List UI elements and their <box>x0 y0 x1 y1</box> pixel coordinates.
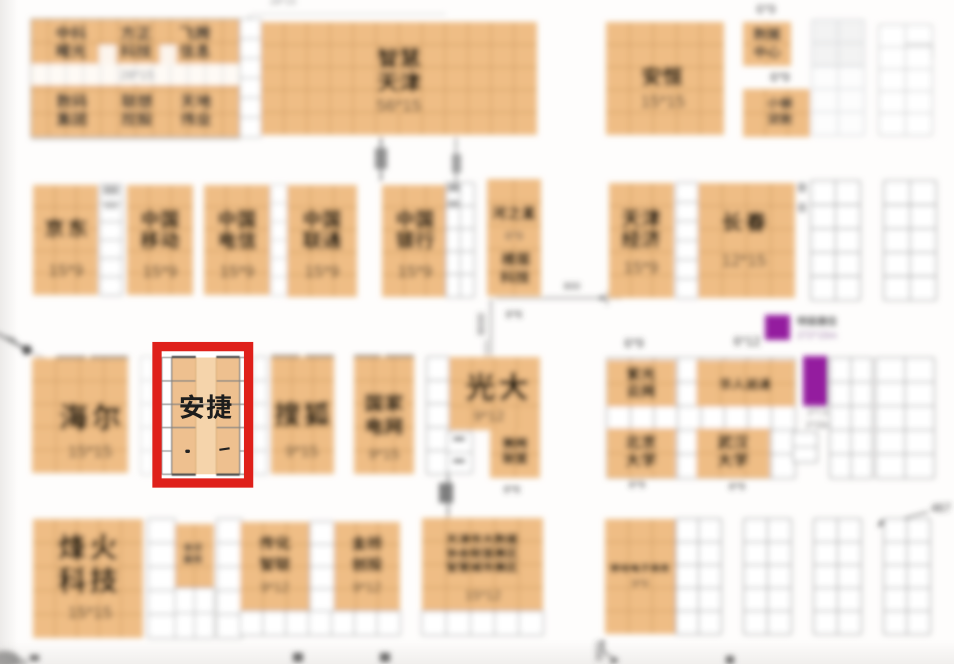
svg-text:6*9: 6*9 <box>756 2 776 17</box>
svg-text:2*15m: 2*15m <box>806 420 832 430</box>
svg-text:15*15: 15*15 <box>68 442 112 461</box>
svg-text:12*15: 12*15 <box>722 251 766 270</box>
svg-text:467: 467 <box>931 501 951 515</box>
svg-text:9*12: 9*12 <box>474 408 505 425</box>
svg-text:28*15: 28*15 <box>270 0 297 8</box>
svg-text:15*15: 15*15 <box>641 92 685 111</box>
svg-text:15*9: 15*9 <box>143 262 178 281</box>
svg-text:15*9: 15*9 <box>624 258 659 277</box>
svg-text:800: 800 <box>564 282 581 293</box>
svg-text:15*15: 15*15 <box>68 603 112 622</box>
svg-text:6*9: 6*9 <box>629 479 646 491</box>
svg-text:15*9: 15*9 <box>220 262 255 281</box>
svg-text:9*12: 9*12 <box>353 579 382 595</box>
svg-text:6*12: 6*12 <box>734 334 761 349</box>
svg-text:15*12: 15*12 <box>465 587 502 603</box>
svg-text:15*9: 15*9 <box>305 262 340 281</box>
svg-text:6*6: 6*6 <box>504 484 521 496</box>
svg-text:15*9: 15*9 <box>398 262 433 281</box>
svg-text:28*15: 28*15 <box>120 68 154 83</box>
svg-text:9*9: 9*9 <box>632 578 649 590</box>
svg-text:15*9: 15*9 <box>49 261 84 280</box>
svg-text:9*12: 9*12 <box>261 579 290 595</box>
svg-text:9*15: 9*15 <box>369 446 400 463</box>
svg-text:6*9: 6*9 <box>770 70 790 85</box>
svg-text:6*6: 6*6 <box>506 309 523 321</box>
svg-text:272*15m: 272*15m <box>797 331 837 342</box>
svg-text:6*9: 6*9 <box>624 336 644 351</box>
svg-text:6*9: 6*9 <box>729 481 746 493</box>
svg-text:56*15: 56*15 <box>377 96 421 115</box>
svg-text:2*7.5: 2*7.5 <box>807 407 828 417</box>
svg-text:8000: 8000 <box>477 312 488 335</box>
svg-text:9*15: 9*15 <box>286 444 319 461</box>
svg-text:6*9: 6*9 <box>505 229 523 243</box>
